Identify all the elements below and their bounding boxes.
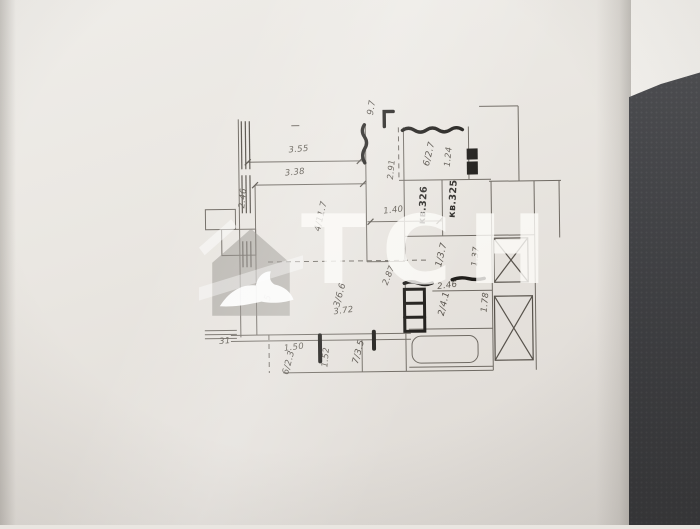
dimension-label: 1.37 [470, 246, 482, 267]
room-label: 3/6.6 [332, 282, 348, 308]
dimension-label: 3.38 [284, 167, 305, 179]
room-label: 7/3.5 [351, 339, 367, 365]
paper-edge-shadow [596, 0, 632, 525]
dimension-label: 2.87 [381, 264, 398, 286]
dimension-label: 1.78 [480, 292, 492, 313]
room-label: 9.7 [366, 99, 378, 116]
dimension-label: 31 [219, 336, 231, 347]
apartment-label: кв.325 [447, 179, 460, 218]
dimension-label: 1.24 [443, 146, 455, 167]
dimension-label: 3.72 [333, 305, 354, 318]
dimension-label: 3.55 [288, 144, 309, 156]
dimension-label: 2.46 [437, 280, 458, 292]
room-label: 5 [263, 294, 274, 303]
plan-labels: 3.55 3.38 2.46 4/11.7 9.7 2.91 6/2.7 1.2… [0, 0, 700, 529]
room-label: 1/3.7 [434, 242, 449, 268]
paper-left-shadow [0, 0, 16, 525]
room-label: 4/11.7 [313, 200, 330, 232]
room-label: 2/4.1 [437, 291, 452, 317]
room-label: 6/2.3 [281, 350, 297, 376]
dimension-label: 1.40 [383, 204, 404, 216]
apartment-label: кв.326 [417, 186, 430, 225]
photo-of-floorplan: { "scene": { "description": "Photograph … [0, 0, 700, 525]
room-label: 6/2.7 [422, 141, 437, 167]
dimension-label: 1.52 [320, 347, 332, 368]
dimension-label: 2.46 [237, 188, 249, 209]
dimension-label: 2.91 [386, 159, 398, 180]
